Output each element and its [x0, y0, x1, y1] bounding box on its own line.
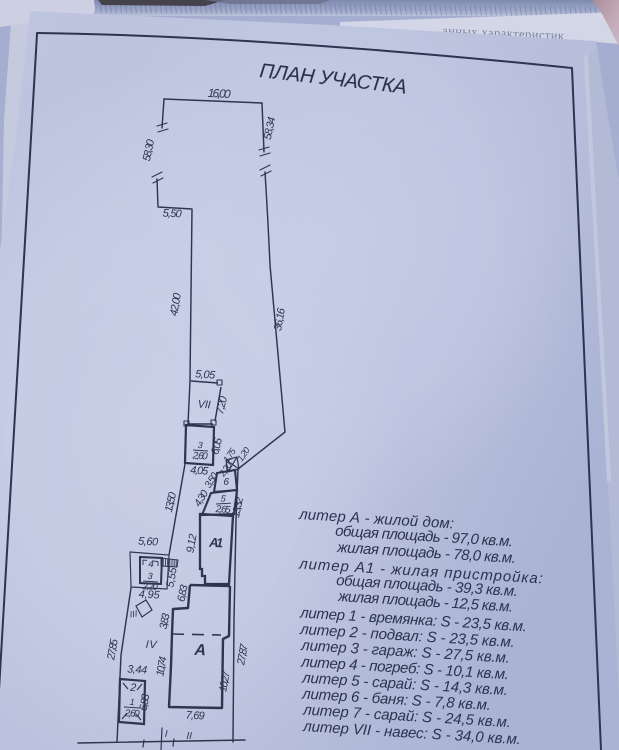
svg-text:3: 3	[197, 440, 203, 450]
svg-text:7,69: 7,69	[185, 710, 205, 723]
svg-text:А1: А1	[208, 535, 224, 551]
svg-text:А: А	[193, 642, 206, 660]
svg-text:II: II	[186, 731, 192, 742]
svg-text:1: 1	[129, 697, 135, 707]
svg-text:2: 2	[129, 682, 137, 694]
svg-text:4: 4	[148, 559, 155, 570]
svg-text:3: 3	[147, 571, 153, 581]
svg-text:2,65: 2,65	[214, 504, 231, 516]
svg-text:3,44: 3,44	[127, 663, 148, 676]
svg-text:4,95: 4,95	[138, 588, 160, 601]
svg-text:5,50: 5,50	[162, 208, 182, 221]
svg-text:VII: VII	[197, 399, 211, 412]
svg-text:2,60: 2,60	[191, 450, 208, 462]
svg-text:16,00: 16,00	[207, 86, 231, 101]
svg-text:4,05: 4,05	[190, 464, 210, 477]
svg-text:5,60: 5,60	[138, 535, 159, 548]
svg-text:5,05: 5,05	[195, 368, 217, 381]
